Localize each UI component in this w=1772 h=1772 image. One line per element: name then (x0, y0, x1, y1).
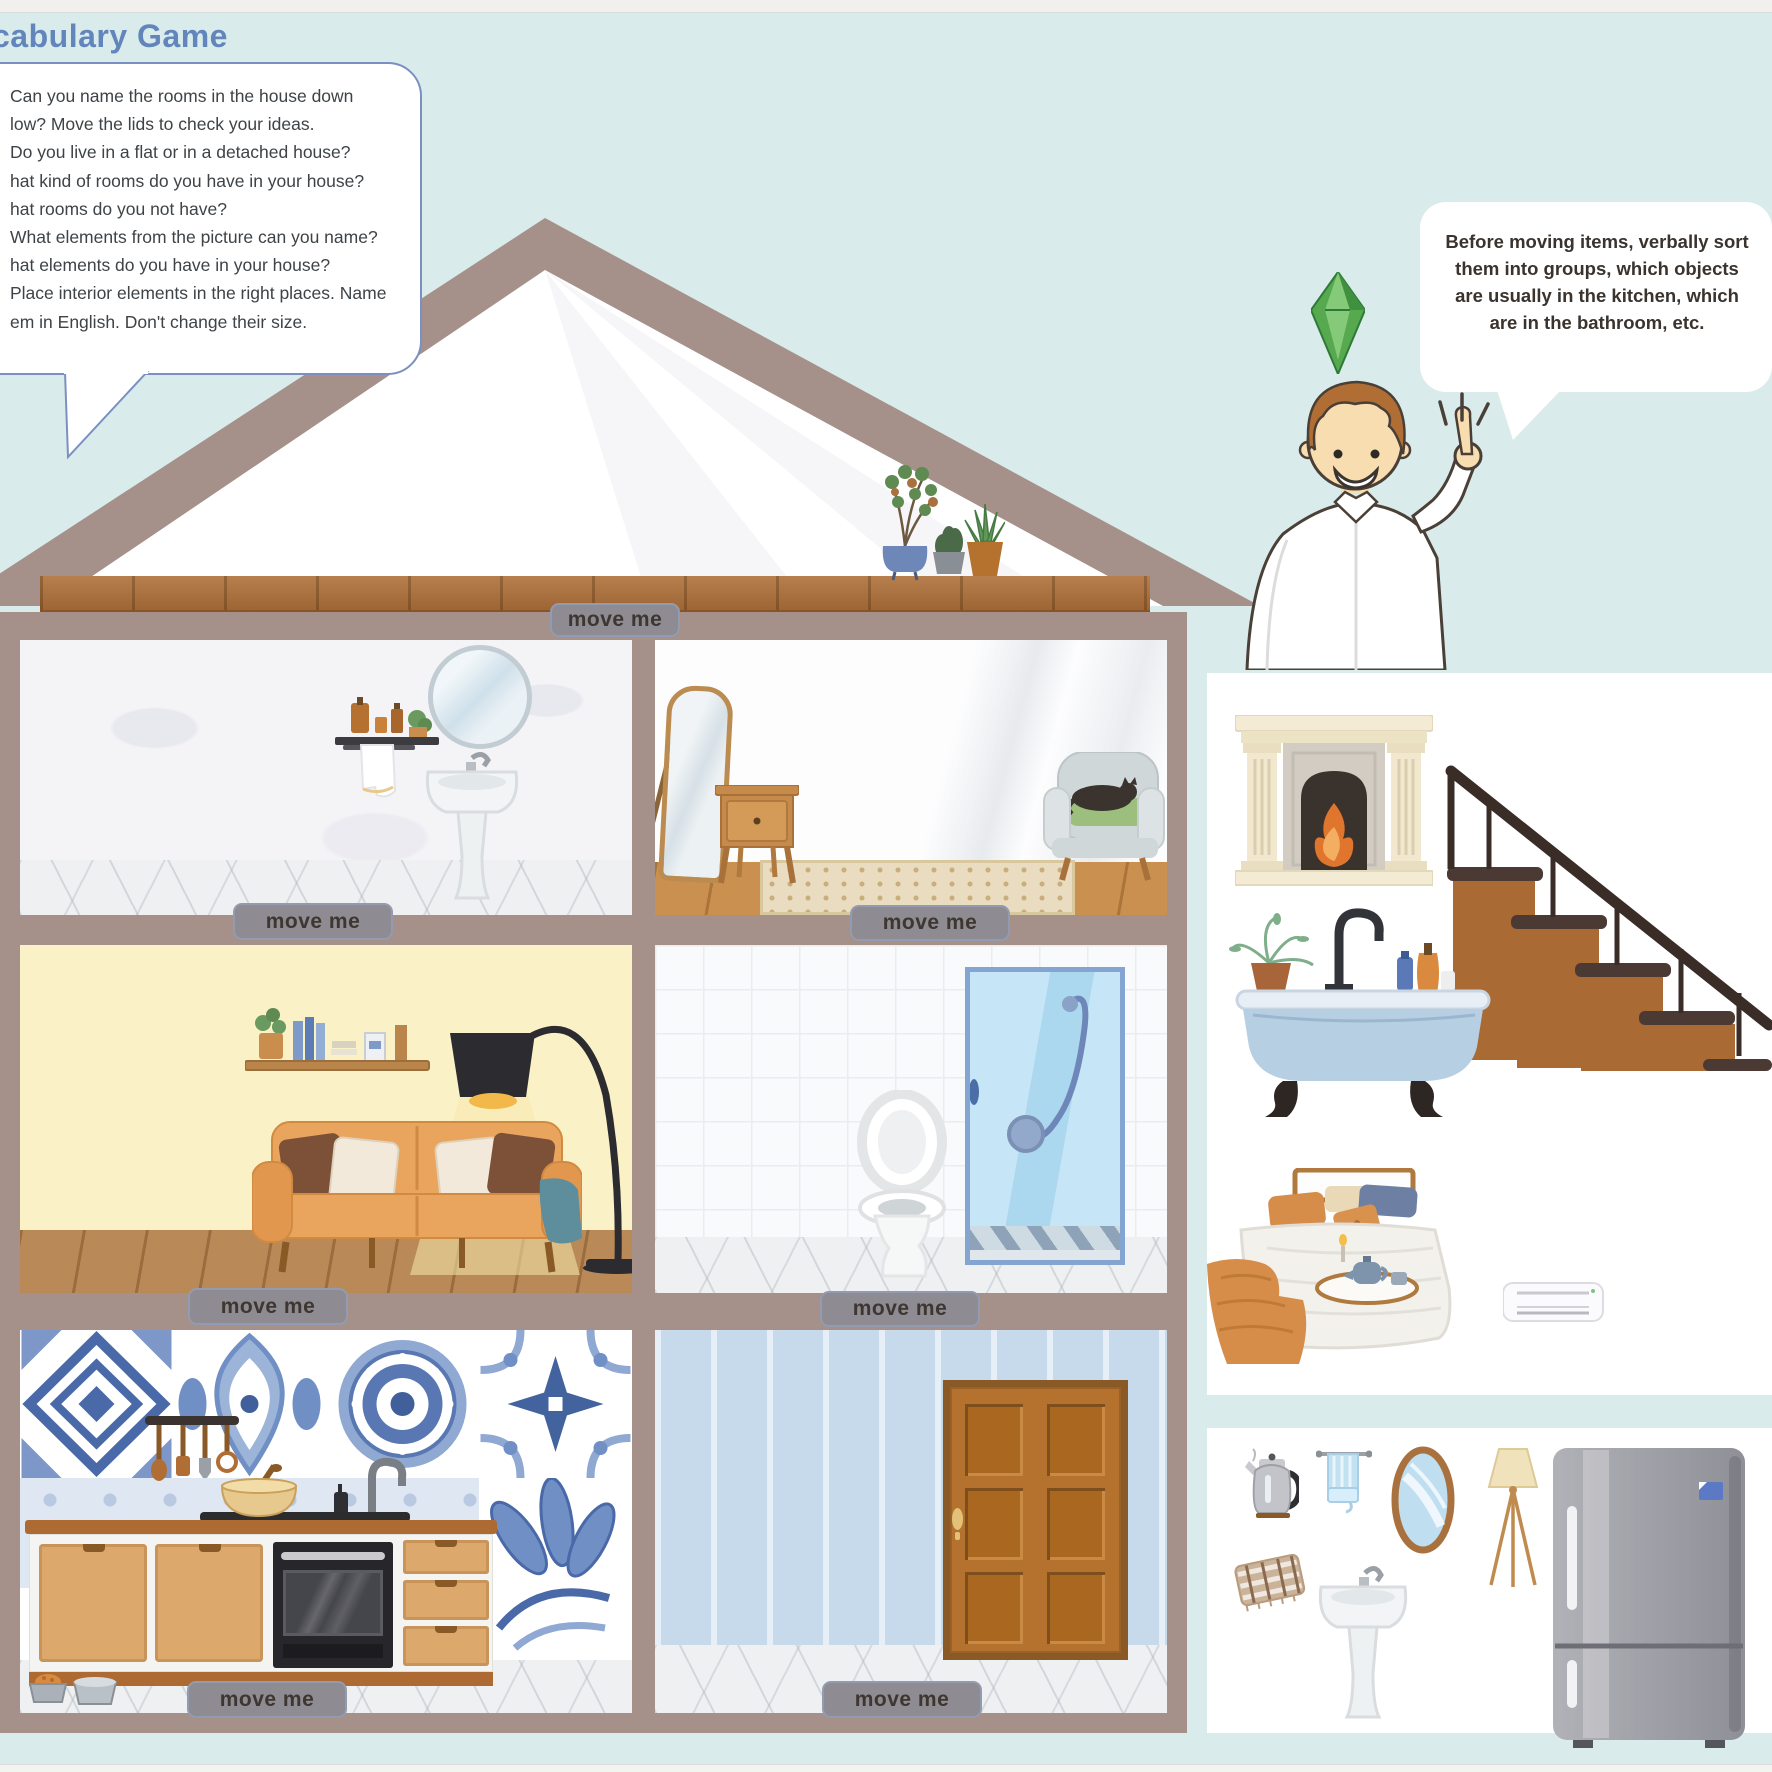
potted-plants-attic[interactable] (865, 450, 1005, 582)
shower-tray (970, 1226, 1120, 1250)
air-conditioner-item[interactable] (1503, 1281, 1605, 1325)
instruction-line: Can you name the rooms in the house down (10, 82, 410, 110)
emphasis-marks (1438, 390, 1492, 432)
lid-label: move me (883, 911, 978, 935)
helper-line: are usually in the kitchen, which (1434, 282, 1760, 309)
lid-label: move me (855, 1688, 950, 1712)
lid-kitchen[interactable]: move me (187, 1681, 347, 1718)
floor-lamp-item[interactable] (1483, 1443, 1543, 1591)
shower-hose (970, 982, 1120, 1222)
bed-item[interactable] (1207, 1168, 1475, 1368)
room-bedroom[interactable] (655, 640, 1167, 915)
fridge-item[interactable] (1553, 1448, 1749, 1750)
wall-shelf-books (245, 1005, 435, 1077)
cabinet-door (39, 1544, 147, 1662)
pedestal-sink (420, 750, 525, 905)
door-panel (1047, 1572, 1105, 1644)
oval-mirror-item[interactable] (1391, 1446, 1455, 1554)
lid-attic[interactable]: move me (550, 603, 680, 637)
lid-living[interactable]: move me (188, 1288, 348, 1325)
door-panel (965, 1572, 1023, 1644)
lid-label: move me (220, 1688, 315, 1712)
helper-line: them into groups, which objects (1434, 255, 1760, 282)
instruction-line: hat rooms do you not have? (10, 195, 410, 223)
lid-label: move me (266, 910, 361, 934)
room-kitchen[interactable] (20, 1330, 632, 1713)
sofa (252, 1120, 582, 1280)
round-mirror (428, 645, 532, 749)
lid-bathroom-upstairs[interactable]: move me (233, 903, 393, 940)
plumbob-icon (1311, 272, 1365, 374)
lid-shower-room[interactable]: move me (820, 1291, 980, 1327)
instruction-line: hat elements do you have in your house? (10, 251, 410, 279)
instruction-bubble-tail (62, 371, 192, 463)
counter-top (25, 1520, 497, 1534)
room-shower[interactable] (655, 945, 1167, 1293)
helper-line: are in the bathroom, etc. (1434, 309, 1760, 336)
toilet (845, 1090, 960, 1280)
lid-label: move me (853, 1297, 948, 1321)
armchair-with-cat (1040, 752, 1167, 882)
door-panel (965, 1404, 1023, 1476)
kettle-item[interactable] (1243, 1447, 1299, 1519)
instruction-line: hat kind of rooms do you have in your ho… (10, 167, 410, 195)
instruction-bubble: Can you name the rooms in the house down… (0, 62, 422, 375)
washbasin-item[interactable] (1315, 1553, 1411, 1725)
vocabulary-game-board: cabulary Game (0, 0, 1772, 1772)
tile-floral (479, 1478, 632, 1662)
items-tray-small (1207, 1428, 1772, 1733)
helper-line: Before moving items, verbally sort (1434, 228, 1760, 255)
nightstand (715, 785, 799, 885)
instruction-line: Do you live in a flat or in a detached h… (10, 138, 410, 166)
items-tray-large (1207, 673, 1772, 1395)
room-bathroom-upstairs[interactable] (20, 640, 632, 915)
towel-item[interactable] (1316, 1446, 1372, 1514)
shower-cabin (965, 967, 1125, 1265)
instruction-line: low? Move the lids to check your ideas. (10, 110, 410, 138)
door-panel (1047, 1488, 1105, 1560)
tile-kaleido (479, 1330, 632, 1478)
bathtub-item[interactable] (1229, 895, 1499, 1121)
shower-base (970, 1250, 1120, 1260)
fireplace-item[interactable] (1235, 715, 1433, 897)
instruction-line: Place interior elements in the right pla… (10, 279, 410, 307)
page-title: cabulary Game (0, 18, 228, 55)
pet-bowls (26, 1660, 121, 1710)
front-door (943, 1380, 1128, 1660)
mixing-bowl (216, 1464, 302, 1520)
window-top-strip (0, 0, 1772, 13)
oven (273, 1542, 393, 1668)
blanket-item[interactable] (1230, 1548, 1310, 1614)
helper-bubble: Before moving items, verbally sort them … (1420, 202, 1772, 392)
door-panel (1047, 1404, 1105, 1476)
lid-hallway[interactable]: move me (822, 1681, 982, 1718)
room-living[interactable] (20, 945, 632, 1293)
cabinet-door (155, 1544, 263, 1662)
lid-label: move me (221, 1295, 316, 1319)
room-hallway[interactable] (655, 1330, 1167, 1713)
door-panel (965, 1488, 1023, 1560)
lid-bedroom[interactable]: move me (850, 905, 1010, 941)
instruction-line: em in English. Don't change their size. (10, 308, 410, 336)
instruction-line: What elements from the picture can you n… (10, 223, 410, 251)
door-handle (952, 1508, 963, 1530)
lid-label: move me (568, 608, 663, 632)
window-bottom-strip (0, 1764, 1772, 1772)
